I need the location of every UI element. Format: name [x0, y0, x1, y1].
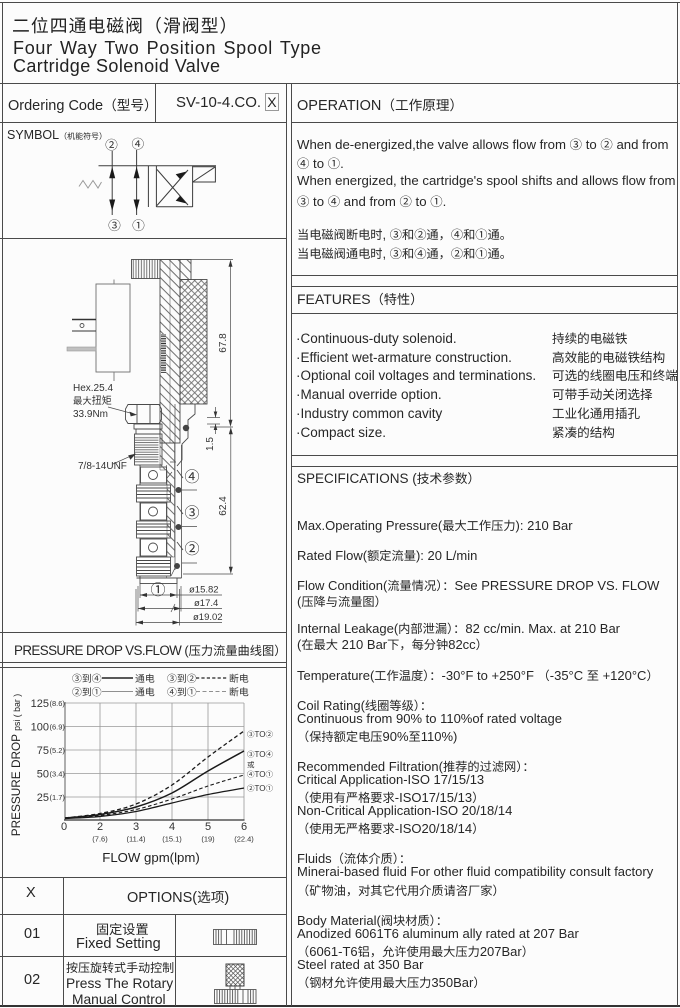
svg-text:③TO④: ③TO④: [247, 749, 273, 760]
svg-text:②: ②: [184, 538, 199, 559]
svg-text:50: 50: [37, 769, 49, 781]
svg-text:(8.6): (8.6): [50, 699, 66, 708]
svg-text:④TO①: ④TO①: [247, 769, 273, 780]
svg-text:5: 5: [205, 821, 211, 833]
svg-text:(22.4): (22.4): [234, 835, 254, 844]
svg-text:0: 0: [61, 821, 67, 833]
svg-text:通电: 通电: [135, 685, 155, 699]
svg-text:3: 3: [133, 821, 139, 833]
svg-text:ø15.82: ø15.82: [189, 585, 219, 596]
svg-text:(7.6): (7.6): [92, 835, 108, 844]
svg-text:PRESSURE DROP psi ( bar ): PRESSURE DROP psi ( bar ): [9, 694, 23, 837]
svg-text:(15.1): (15.1): [162, 835, 182, 844]
svg-text:(5.2): (5.2): [50, 746, 66, 755]
svg-text:②到①: ②到①: [72, 685, 102, 699]
svg-text:①: ①: [132, 215, 145, 234]
svg-text:125: 125: [31, 698, 49, 710]
svg-text:④到①: ④到①: [167, 685, 197, 699]
svg-text:1.5: 1.5: [205, 437, 216, 451]
svg-text:(1.7): (1.7): [50, 793, 66, 802]
svg-text:FLOW gpm(lpm): FLOW gpm(lpm): [102, 850, 199, 865]
svg-text:③到②: ③到②: [167, 671, 197, 685]
svg-text:ø19.02: ø19.02: [193, 612, 223, 623]
svg-text:通电: 通电: [135, 671, 155, 685]
svg-text:62.4: 62.4: [218, 496, 229, 516]
svg-text:③: ③: [184, 502, 199, 523]
svg-text:③TO②: ③TO②: [247, 729, 273, 740]
svg-text:100: 100: [31, 722, 49, 734]
svg-text:7/8-14UNF: 7/8-14UNF: [78, 461, 127, 472]
svg-text:断电: 断电: [229, 685, 249, 699]
svg-text:最大扭矩: 最大扭矩: [73, 393, 112, 407]
svg-text:67.8: 67.8: [218, 333, 229, 353]
svg-text:33.9Nm: 33.9Nm: [73, 409, 108, 420]
svg-text:(3.4): (3.4): [50, 770, 66, 779]
svg-text:(11.4): (11.4): [126, 835, 146, 844]
svg-text:(6.9): (6.9): [50, 723, 66, 732]
svg-text:④: ④: [184, 466, 199, 487]
svg-text:③到④: ③到④: [72, 671, 102, 685]
svg-text:ø17.4: ø17.4: [194, 598, 218, 609]
svg-text:断电: 断电: [229, 671, 249, 685]
svg-text:①: ①: [150, 579, 165, 600]
svg-text:(19): (19): [201, 835, 215, 844]
svg-text:②TO①: ②TO①: [247, 783, 273, 794]
svg-text:6: 6: [241, 821, 247, 833]
svg-text:4: 4: [169, 821, 175, 833]
svg-text:②: ②: [105, 135, 118, 154]
svg-text:③: ③: [108, 215, 121, 234]
svg-text:25: 25: [37, 792, 49, 804]
svg-text:75: 75: [37, 745, 49, 757]
svg-text:2: 2: [97, 821, 103, 833]
svg-text:④: ④: [131, 134, 144, 153]
